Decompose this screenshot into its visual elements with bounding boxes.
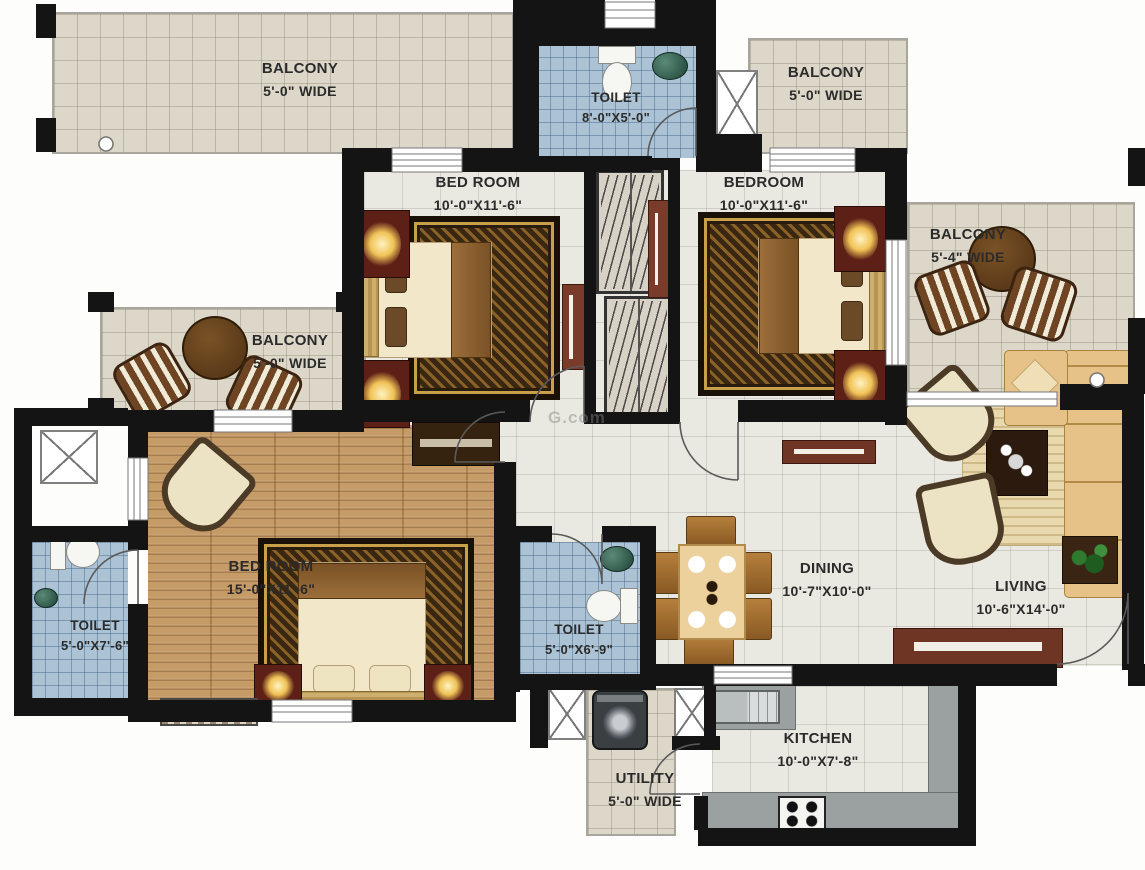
window bbox=[714, 666, 792, 684]
room-label-living: LIVING 10'-6"X14'-0" bbox=[946, 576, 1096, 620]
room-name: KITCHEN bbox=[732, 728, 904, 751]
dining-chair bbox=[650, 552, 680, 594]
tv-console bbox=[893, 628, 1063, 668]
room-dims: 10'-7"X10'-0" bbox=[752, 581, 902, 602]
dining-chair bbox=[684, 636, 734, 666]
bed-pillow bbox=[369, 665, 411, 693]
room-dims: 10'-0"X7'-8" bbox=[732, 751, 904, 772]
duct-shaft bbox=[674, 688, 710, 738]
nightstand-lamp bbox=[354, 360, 410, 428]
room-dims: 5'-0" WIDE bbox=[222, 353, 358, 374]
nightstand-lamp bbox=[834, 350, 886, 416]
dining-chair bbox=[742, 598, 772, 640]
room-name: LIVING bbox=[946, 576, 1096, 599]
room-dims: 10'-6"X14'-0" bbox=[946, 599, 1096, 620]
room-label-toilet-top: TOILET 8'-0"X5'-0" bbox=[546, 88, 686, 128]
duct-shaft bbox=[40, 430, 98, 484]
room-label-bedroom-1: BED ROOM 10'-0"X11'-6" bbox=[388, 172, 568, 216]
bed-pillow bbox=[841, 301, 863, 341]
room-dims: 10'-0"X11'-6" bbox=[678, 195, 850, 216]
dining-table bbox=[678, 544, 746, 640]
nightstand-lamp bbox=[254, 664, 302, 708]
room-name: BALCONY bbox=[752, 62, 900, 85]
room-name: UTILITY bbox=[574, 768, 716, 791]
room-label-balcony-top-left: BALCONY 5'-0" WIDE bbox=[205, 58, 395, 102]
console-table bbox=[782, 440, 876, 464]
wash-basin bbox=[652, 52, 688, 80]
room-name: BALCONY bbox=[205, 58, 395, 81]
wash-basin bbox=[600, 546, 634, 572]
wc-bowl bbox=[66, 536, 100, 568]
window bbox=[886, 240, 906, 365]
room-dims: 5'-0"X6'-9" bbox=[516, 640, 642, 660]
kitchen-sink bbox=[712, 690, 780, 724]
bed-blanket bbox=[451, 242, 491, 358]
nightstand-lamp bbox=[354, 210, 410, 278]
room-dims: 5'-0"X7'-6" bbox=[40, 636, 150, 656]
room-name: BED ROOM bbox=[178, 556, 364, 579]
floor-mat bbox=[160, 698, 258, 726]
dining-chair bbox=[686, 516, 736, 546]
wc-tank bbox=[620, 588, 638, 624]
room-label-balcony-top-right: BALCONY 5'-0" WIDE bbox=[752, 62, 900, 106]
room-dims: 5'-0" WIDE bbox=[205, 81, 395, 102]
wash-basin bbox=[34, 588, 58, 608]
floor-plan: BALCONY 5'-0" WIDE TOILET 8'-0"X5'-0" BA… bbox=[0, 0, 1145, 870]
nightstand-lamp bbox=[424, 664, 472, 708]
room-label-kitchen: KITCHEN 10'-0"X7'-8" bbox=[732, 728, 904, 772]
wc-bowl bbox=[586, 590, 622, 622]
wc-tank bbox=[50, 536, 66, 570]
bed-blanket bbox=[759, 238, 799, 354]
washing-machine bbox=[592, 690, 648, 750]
room-label-utility: UTILITY 5'-0" WIDE bbox=[574, 768, 716, 812]
bed-pillow bbox=[313, 665, 355, 693]
wardrobe-side-panel bbox=[648, 200, 670, 298]
room-name: BALCONY bbox=[908, 224, 1028, 247]
room-label-toilet-left: TOILET 5'-0"X7'-6" bbox=[40, 616, 150, 656]
room-dims: 5'-0" WIDE bbox=[574, 791, 716, 812]
room-label-balcony-left: BALCONY 5'-0" WIDE bbox=[222, 330, 358, 374]
room-name: BED ROOM bbox=[388, 172, 568, 195]
room-label-toilet-mid: TOILET 5'-0"X6'-9" bbox=[516, 620, 642, 660]
duct-shaft bbox=[548, 688, 586, 740]
nightstand-lamp bbox=[834, 206, 886, 272]
window bbox=[128, 458, 148, 520]
room-name: DINING bbox=[752, 558, 902, 581]
gas-hob bbox=[778, 796, 826, 832]
room-dims: 15'-0"X11'-6" bbox=[178, 579, 364, 600]
room-dims: 10'-0"X11'-6" bbox=[388, 195, 568, 216]
room-name: TOILET bbox=[40, 616, 150, 636]
watermark: G.com bbox=[548, 408, 606, 428]
bed-headboard bbox=[298, 691, 426, 706]
kitchen-counter bbox=[702, 792, 960, 832]
room-label-balcony-right: BALCONY 5'-4" WIDE bbox=[908, 224, 1028, 268]
room-name: BALCONY bbox=[222, 330, 358, 353]
room-label-bedroom-2: BEDROOM 10'-0"X11'-6" bbox=[678, 172, 850, 216]
room-label-dining: DINING 10'-7"X10'-0" bbox=[752, 558, 902, 602]
room-dims: 5'-0" WIDE bbox=[752, 85, 900, 106]
room-name: BEDROOM bbox=[678, 172, 850, 195]
room-name: TOILET bbox=[516, 620, 642, 640]
room-label-master-bedroom: BED ROOM 15'-0"X11'-6" bbox=[178, 556, 364, 600]
room-dims: 8'-0"X5'-0" bbox=[546, 108, 686, 128]
tv-cabinet bbox=[412, 422, 500, 466]
dining-chair bbox=[650, 598, 680, 640]
room-name: TOILET bbox=[546, 88, 686, 108]
room-dims: 5'-4" WIDE bbox=[908, 247, 1028, 268]
wardrobe-side-panel bbox=[562, 284, 586, 370]
bed-pillow bbox=[385, 307, 407, 347]
wardrobe bbox=[604, 296, 672, 420]
window bbox=[605, 2, 655, 28]
